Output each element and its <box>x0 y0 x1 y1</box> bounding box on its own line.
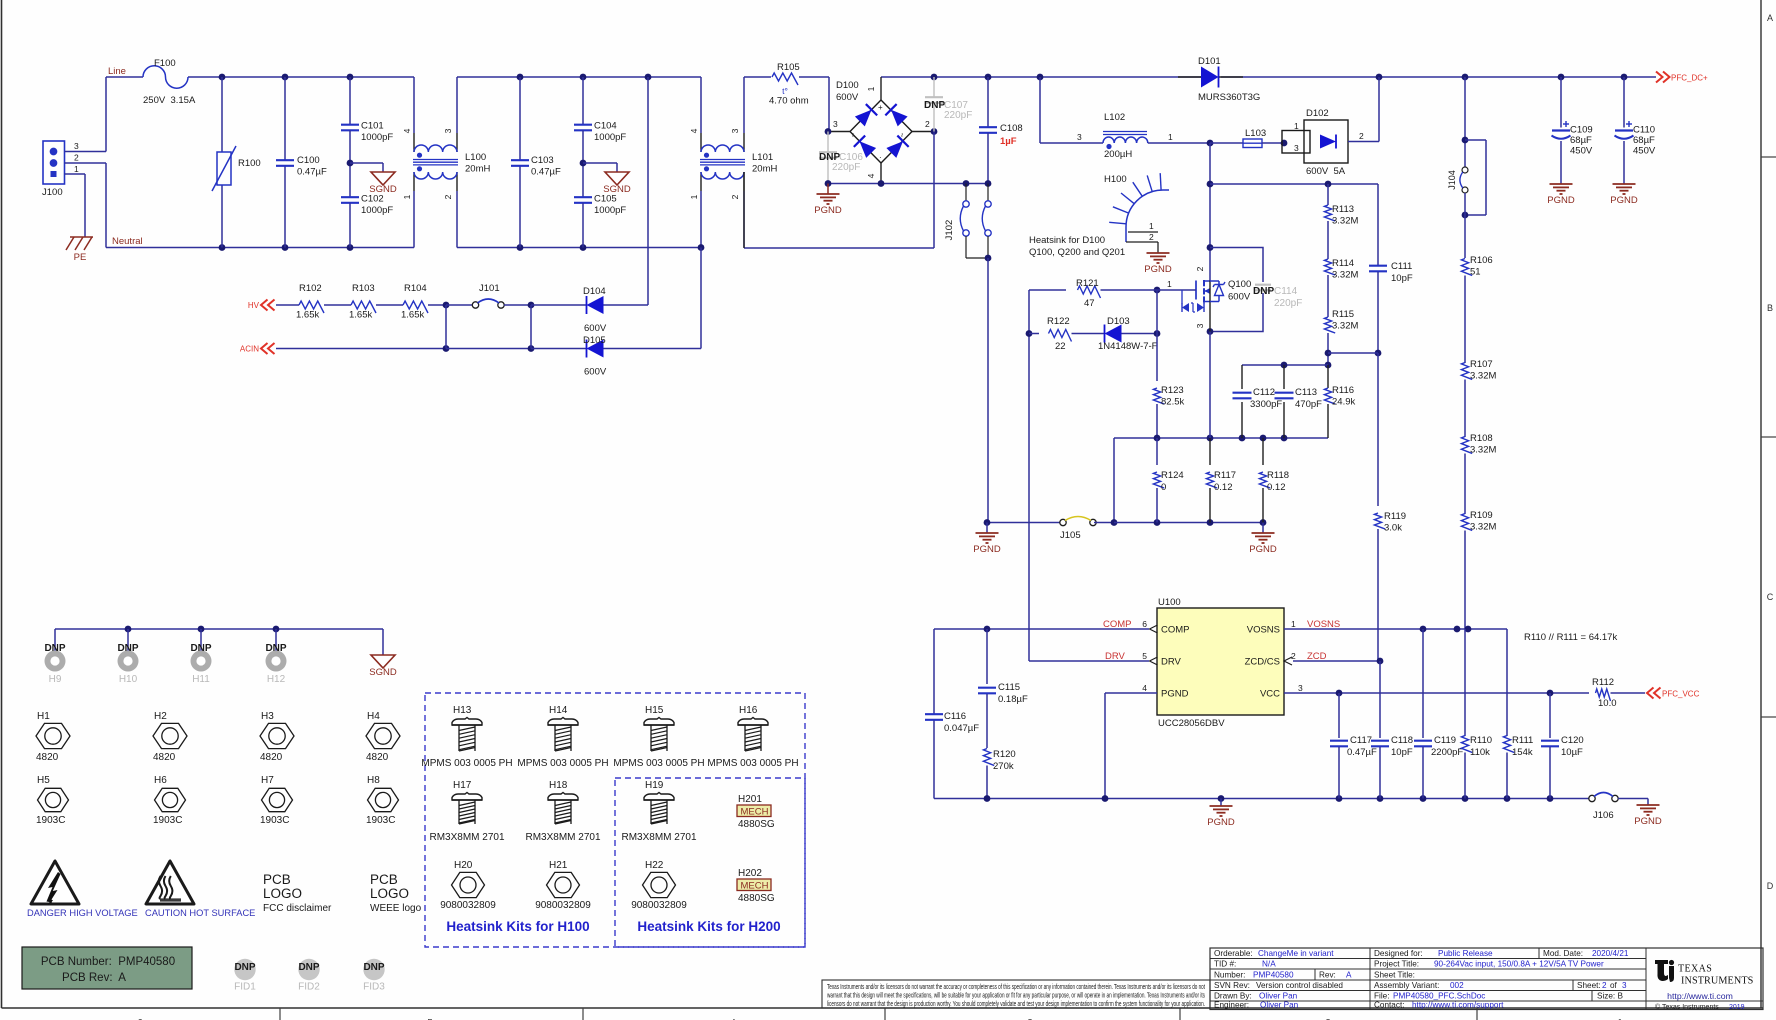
svg-text:A: A <box>1767 13 1773 23</box>
svg-text:4820: 4820 <box>366 752 389 763</box>
svg-text:90-264Vac input, 150/0.8A + 12: 90-264Vac input, 150/0.8A + 12V/5A TV Po… <box>1434 960 1604 969</box>
svg-text:22: 22 <box>1055 341 1066 352</box>
svg-text:Q100, Q200 and Q201: Q100, Q200 and Q201 <box>1029 247 1125 258</box>
svg-text:C120: C120 <box>1561 735 1584 746</box>
svg-text:2: 2 <box>925 119 930 129</box>
svg-text:C112: C112 <box>1253 387 1275 398</box>
svg-text:600V: 600V <box>584 323 607 334</box>
svg-text:R100: R100 <box>238 158 261 169</box>
svg-text:1903C: 1903C <box>36 815 65 826</box>
svg-text:~: ~ <box>898 132 907 137</box>
svg-text:D: D <box>1767 881 1774 891</box>
svg-text:DNP: DNP <box>234 962 255 973</box>
svg-text:0.47µF: 0.47µF <box>1347 747 1377 758</box>
svg-text:MPMS 003 0005 PH: MPMS 003 0005 PH <box>707 758 798 769</box>
svg-text:4.70 ohm: 4.70 ohm <box>769 96 809 107</box>
svg-text:D102: D102 <box>1306 108 1329 119</box>
svg-text:SGND: SGND <box>369 667 397 678</box>
svg-text:A: A <box>1346 971 1352 980</box>
svg-text:1000pF: 1000pF <box>361 205 393 216</box>
svg-text:1.65k: 1.65k <box>349 310 372 321</box>
svg-text:N/A: N/A <box>1262 960 1276 969</box>
svg-text:U100: U100 <box>1158 597 1181 608</box>
svg-text:H100: H100 <box>1104 174 1127 185</box>
svg-text:H10: H10 <box>119 674 138 685</box>
svg-text:0: 0 <box>1161 482 1166 493</box>
svg-text:1: 1 <box>1294 121 1299 131</box>
svg-text:6: 6 <box>1142 619 1147 629</box>
svg-text:C104: C104 <box>594 121 617 132</box>
svg-text:R106: R106 <box>1470 255 1493 266</box>
svg-text:4820: 4820 <box>153 752 176 763</box>
svg-text:C110: C110 <box>1633 125 1655 136</box>
svg-text:1: 1 <box>1168 132 1173 142</box>
svg-text:1903C: 1903C <box>366 815 395 826</box>
svg-text:1: 1 <box>1149 221 1154 231</box>
svg-text:C116: C116 <box>944 711 966 722</box>
svg-text:Q100: Q100 <box>1228 279 1251 290</box>
svg-text:600V: 600V <box>584 367 607 378</box>
svg-text:3.32M: 3.32M <box>1332 216 1358 227</box>
svg-text:t°: t° <box>782 86 788 96</box>
svg-text:PCB Number: PMP40580: PCB Number: PMP40580 <box>41 956 175 968</box>
svg-text:1: 1 <box>689 194 699 199</box>
svg-text:R105: R105 <box>777 62 800 73</box>
svg-text:RM3X8MM 2701: RM3X8MM 2701 <box>621 832 696 843</box>
svg-text:R103: R103 <box>352 283 375 294</box>
svg-text:1N4148W-7-F: 1N4148W-7-F <box>1098 341 1158 352</box>
svg-text:4820: 4820 <box>260 752 283 763</box>
svg-text:1903C: 1903C <box>260 815 289 826</box>
svg-text:PCB: PCB <box>263 872 291 887</box>
svg-text:H15: H15 <box>645 705 664 716</box>
svg-text:DNP: DNP <box>924 100 945 111</box>
svg-text:Contact:: Contact: <box>1374 1001 1405 1010</box>
svg-text:82.5k: 82.5k <box>1161 397 1184 408</box>
svg-text:C118: C118 <box>1391 735 1413 746</box>
svg-text:© Texas Instruments: © Texas Instruments <box>1655 1003 1719 1011</box>
svg-text:20mH: 20mH <box>752 164 777 175</box>
svg-text:D100: D100 <box>836 80 859 91</box>
svg-text:110k: 110k <box>1470 747 1490 758</box>
svg-text:C100: C100 <box>297 155 320 166</box>
svg-text:H1: H1 <box>37 711 50 722</box>
svg-text:Mod. Date:: Mod. Date: <box>1543 949 1583 958</box>
svg-text:PFC_VCC: PFC_VCC <box>1662 690 1700 699</box>
svg-text:2200pF: 2200pF <box>1431 747 1463 758</box>
svg-text:DANGER HIGH VOLTAGE: DANGER HIGH VOLTAGE <box>27 908 138 918</box>
svg-text:2020/4/21: 2020/4/21 <box>1592 949 1629 958</box>
svg-text:C108: C108 <box>1000 123 1023 134</box>
svg-text:1903C: 1903C <box>153 815 182 826</box>
svg-text:1µF: 1µF <box>1000 136 1017 147</box>
svg-text:H16: H16 <box>739 705 758 716</box>
svg-text:Rev:: Rev: <box>1319 971 1336 980</box>
svg-text:FID3: FID3 <box>363 982 385 993</box>
svg-text:2: 2 <box>1291 651 1296 661</box>
svg-text:2: 2 <box>74 153 79 163</box>
svg-text:Number:: Number: <box>1214 971 1245 980</box>
svg-text:C101: C101 <box>361 121 384 132</box>
svg-text:3: 3 <box>1298 683 1303 693</box>
svg-text:C113: C113 <box>1295 387 1317 398</box>
svg-text:450V: 450V <box>1633 146 1656 157</box>
svg-text:LOGO: LOGO <box>263 886 302 901</box>
svg-text:H201: H201 <box>738 794 762 805</box>
svg-text:220pF: 220pF <box>832 162 860 173</box>
svg-text:ZCD/CS: ZCD/CS <box>1245 657 1280 668</box>
svg-text:R109: R109 <box>1470 510 1493 521</box>
svg-text:2: 2 <box>1149 232 1154 242</box>
svg-text:MECH: MECH <box>741 807 769 818</box>
svg-text:C: C <box>1767 592 1774 602</box>
svg-text:3: 3 <box>833 119 838 129</box>
svg-text:L100: L100 <box>465 152 486 163</box>
svg-text:C114: C114 <box>1274 286 1298 297</box>
svg-text:600V: 600V <box>1228 292 1251 303</box>
svg-text:R104: R104 <box>404 283 427 294</box>
svg-text:600V 5A: 600V 5A <box>1306 166 1346 177</box>
svg-text:3300pF: 3300pF <box>1250 399 1282 410</box>
svg-text:H13: H13 <box>453 705 472 716</box>
svg-text:H3: H3 <box>261 711 274 722</box>
svg-text:J102: J102 <box>944 220 955 241</box>
svg-text:C111: C111 <box>1391 261 1412 272</box>
svg-text:R124: R124 <box>1161 470 1184 481</box>
svg-text:PGND: PGND <box>1161 689 1189 700</box>
svg-text:1: 1 <box>866 86 876 91</box>
svg-text:H4: H4 <box>367 711 380 722</box>
svg-text:File:: File: <box>1374 992 1389 1001</box>
svg-text:RM3X8MM 2701: RM3X8MM 2701 <box>525 832 600 843</box>
svg-text:J101: J101 <box>479 283 500 294</box>
svg-text:3: 3 <box>443 128 453 133</box>
svg-text:B: B <box>1767 303 1773 313</box>
svg-text:D101: D101 <box>1198 56 1221 67</box>
svg-text:4: 4 <box>866 173 876 178</box>
svg-text:H12: H12 <box>267 674 286 685</box>
svg-text:HV: HV <box>248 301 260 310</box>
svg-text:3: 3 <box>1622 981 1627 990</box>
svg-text:1: 1 <box>74 164 79 174</box>
svg-text:J100: J100 <box>42 187 63 198</box>
svg-text:ChangeMe in variant: ChangeMe in variant <box>1258 949 1334 958</box>
svg-text:DNP: DNP <box>265 643 286 654</box>
svg-text:R114: R114 <box>1332 258 1354 269</box>
svg-text:PE: PE <box>74 252 87 263</box>
svg-text:1000pF: 1000pF <box>594 205 626 216</box>
svg-text:DNP: DNP <box>44 643 65 654</box>
svg-text:R102: R102 <box>299 283 322 294</box>
svg-text:2019: 2019 <box>1729 1004 1745 1011</box>
svg-text:3.32M: 3.32M <box>1470 522 1496 533</box>
svg-text:~: ~ <box>849 132 858 137</box>
svg-text:Size: B: Size: B <box>1597 992 1623 1001</box>
svg-text:ACIN: ACIN <box>240 345 259 354</box>
svg-text:LOGO: LOGO <box>370 886 409 901</box>
svg-text:R115: R115 <box>1332 309 1354 320</box>
svg-text:3.32M: 3.32M <box>1470 445 1496 456</box>
svg-text:Oliver Pan: Oliver Pan <box>1260 1001 1299 1010</box>
svg-text:0.47µF: 0.47µF <box>297 167 327 178</box>
svg-text:L101: L101 <box>752 152 773 163</box>
svg-text:VCC: VCC <box>1260 689 1280 700</box>
svg-text:C119: C119 <box>1434 735 1456 746</box>
svg-text:PGND: PGND <box>973 544 1001 555</box>
svg-text:R120: R120 <box>993 749 1016 760</box>
svg-text:3.0k: 3.0k <box>1384 523 1402 534</box>
svg-text:10pF: 10pF <box>1391 273 1413 284</box>
svg-text:3: 3 <box>1077 132 1082 142</box>
svg-text:10.0: 10.0 <box>1598 698 1617 709</box>
svg-text:L103: L103 <box>1245 128 1266 139</box>
svg-text:SGND: SGND <box>603 184 631 195</box>
svg-text:R119: R119 <box>1384 511 1406 522</box>
svg-text:PMP40580_PFC.SchDoc: PMP40580_PFC.SchDoc <box>1393 992 1485 1001</box>
svg-text:Heatsink Kits for H100: Heatsink Kits for H100 <box>446 919 589 934</box>
svg-text:CAUTION HOT SURFACE: CAUTION HOT SURFACE <box>145 908 255 918</box>
svg-text:4880SG: 4880SG <box>738 819 775 830</box>
svg-text:DNP: DNP <box>1253 286 1274 297</box>
svg-text:3: 3 <box>1294 143 1299 153</box>
svg-text:Orderable:: Orderable: <box>1214 949 1253 958</box>
svg-text:0.047µF: 0.047µF <box>944 723 979 734</box>
svg-text:PCB: PCB <box>370 872 398 887</box>
svg-text:Line: Line <box>108 66 126 77</box>
svg-text:J105: J105 <box>1060 530 1081 541</box>
svg-text:1000pF: 1000pF <box>594 132 626 143</box>
svg-text:FID1: FID1 <box>234 982 256 993</box>
svg-text:H20: H20 <box>454 860 473 871</box>
svg-text:PCB Rev: A: PCB Rev: A <box>62 972 126 984</box>
svg-text:9080032809: 9080032809 <box>440 900 496 911</box>
svg-text:R116: R116 <box>1332 385 1354 396</box>
svg-text:R110 // R111 = 64.17k: R110 // R111 = 64.17k <box>1524 632 1617 643</box>
svg-text:24.9k: 24.9k <box>1332 397 1355 408</box>
svg-text:450V: 450V <box>1570 146 1593 157</box>
svg-text:1000pF: 1000pF <box>361 132 393 143</box>
svg-text:H21: H21 <box>549 860 568 871</box>
svg-text:002: 002 <box>1450 981 1464 990</box>
svg-text:4: 4 <box>689 128 699 133</box>
svg-text:licensors do not warrant that: licensors do not warrant that the design… <box>827 999 1205 1008</box>
svg-text:F100: F100 <box>154 58 176 69</box>
svg-text:4820: 4820 <box>36 752 59 763</box>
svg-text:of: of <box>1610 981 1618 990</box>
svg-text:COMP: COMP <box>1161 625 1190 636</box>
svg-text:C105: C105 <box>594 194 617 205</box>
svg-text:C115: C115 <box>998 682 1020 693</box>
svg-text:DNP: DNP <box>117 643 138 654</box>
svg-text:3.32M: 3.32M <box>1332 321 1358 332</box>
svg-text:Project Title:: Project Title: <box>1374 960 1419 969</box>
svg-text:1: 1 <box>1167 279 1172 289</box>
svg-text:FCC disclaimer: FCC disclaimer <box>263 903 332 914</box>
svg-text:D105: D105 <box>583 335 606 346</box>
svg-text:UCC28056DBV: UCC28056DBV <box>1158 718 1225 729</box>
svg-text:3: 3 <box>1195 323 1205 328</box>
svg-text:PGND: PGND <box>1144 264 1172 275</box>
svg-text:3: 3 <box>730 128 740 133</box>
svg-text:200µH: 200µH <box>1104 149 1132 160</box>
svg-text:MPMS 003 0005 PH: MPMS 003 0005 PH <box>613 758 704 769</box>
svg-text:9080032809: 9080032809 <box>535 900 591 911</box>
svg-text:C109: C109 <box>1570 125 1593 136</box>
svg-text:H5: H5 <box>37 775 50 786</box>
svg-text:+: + <box>878 103 883 112</box>
svg-text:R113: R113 <box>1332 204 1354 215</box>
svg-text:2: 2 <box>1359 131 1364 141</box>
svg-text:D104: D104 <box>583 286 606 297</box>
svg-text:C117: C117 <box>1350 735 1372 746</box>
svg-text:Assembly Variant:: Assembly Variant: <box>1374 981 1439 990</box>
svg-text:Drawn By:: Drawn By: <box>1214 992 1252 1001</box>
svg-text:PGND: PGND <box>814 205 842 216</box>
svg-text:H202: H202 <box>738 868 762 879</box>
svg-text:5: 5 <box>1142 651 1147 661</box>
svg-text:PMP40580: PMP40580 <box>1253 971 1294 980</box>
svg-text:PGND: PGND <box>1634 816 1662 827</box>
svg-text:·: · <box>879 153 882 162</box>
svg-text:FID2: FID2 <box>298 982 320 993</box>
svg-text:RM3X8MM 2701: RM3X8MM 2701 <box>429 832 504 843</box>
svg-text:R122: R122 <box>1047 316 1070 327</box>
svg-text:DRV: DRV <box>1161 657 1182 668</box>
svg-text:WEEE logo: WEEE logo <box>370 903 422 914</box>
svg-text:1.65k: 1.65k <box>296 310 319 321</box>
svg-text:R111: R111 <box>1512 735 1533 746</box>
svg-text:J106: J106 <box>1593 810 1614 821</box>
svg-text:MPMS 003 0005 PH: MPMS 003 0005 PH <box>517 758 608 769</box>
svg-text:0.12: 0.12 <box>1214 482 1233 493</box>
svg-text:PGND: PGND <box>1547 195 1575 206</box>
svg-text:R112: R112 <box>1592 677 1614 688</box>
svg-text:1: 1 <box>402 194 412 199</box>
svg-text:600V: 600V <box>836 92 859 103</box>
svg-text:Sheet:: Sheet: <box>1577 981 1601 990</box>
svg-text:Neutral: Neutral <box>112 236 143 247</box>
svg-text:L102: L102 <box>1104 112 1125 123</box>
svg-text:47: 47 <box>1084 298 1095 309</box>
svg-text:http://www.ti.com: http://www.ti.com <box>1667 991 1733 1001</box>
svg-text:H11: H11 <box>192 674 210 685</box>
svg-text:4: 4 <box>1142 683 1147 693</box>
svg-text:0.12: 0.12 <box>1267 482 1286 493</box>
svg-text:R110: R110 <box>1470 735 1492 746</box>
svg-text:MECH: MECH <box>741 881 769 892</box>
svg-text:1.65k: 1.65k <box>401 310 424 321</box>
svg-text:220pF: 220pF <box>944 110 972 121</box>
svg-text:DNP: DNP <box>298 962 319 973</box>
svg-text:Engineer:: Engineer: <box>1214 1001 1249 1010</box>
svg-text:PGND: PGND <box>1249 544 1277 555</box>
svg-text:MURS360T3G: MURS360T3G <box>1198 92 1260 103</box>
svg-text:68µF: 68µF <box>1633 135 1655 146</box>
svg-text:TID #:: TID #: <box>1214 960 1236 969</box>
svg-text:10µF: 10µF <box>1561 747 1583 758</box>
svg-text:Version control disabled: Version control disabled <box>1256 981 1343 990</box>
svg-text:H19: H19 <box>645 780 664 791</box>
svg-text:Oliver Pan: Oliver Pan <box>1259 992 1298 1001</box>
svg-text:DNP: DNP <box>363 962 384 973</box>
svg-text:154k: 154k <box>1512 747 1533 758</box>
svg-text:MPMS 003 0005 PH: MPMS 003 0005 PH <box>421 758 512 769</box>
svg-text:D103: D103 <box>1107 316 1130 327</box>
svg-text:H2: H2 <box>154 711 167 722</box>
svg-text:H7: H7 <box>261 775 274 786</box>
svg-text:Designed for:: Designed for: <box>1374 949 1423 958</box>
svg-text:10pF: 10pF <box>1391 747 1413 758</box>
svg-text:H8: H8 <box>367 775 380 786</box>
svg-text:20mH: 20mH <box>465 164 490 175</box>
svg-text:J104: J104 <box>1447 170 1457 190</box>
svg-text:R121: R121 <box>1076 278 1099 289</box>
svg-text:PGND: PGND <box>1610 195 1638 206</box>
svg-text:Heatsink for D100: Heatsink for D100 <box>1029 235 1105 246</box>
svg-text:51: 51 <box>1470 267 1481 278</box>
svg-text:R118: R118 <box>1267 470 1289 481</box>
svg-text:3.32M: 3.32M <box>1470 371 1496 382</box>
svg-text:VOSNS: VOSNS <box>1247 625 1280 636</box>
svg-text:2: 2 <box>1195 266 1205 271</box>
svg-text:C102: C102 <box>361 194 384 205</box>
svg-text:H6: H6 <box>154 775 167 786</box>
svg-text:H9: H9 <box>49 674 62 685</box>
svg-text:PGND: PGND <box>1207 817 1235 828</box>
svg-text:SGND: SGND <box>369 184 397 195</box>
svg-text:9080032809: 9080032809 <box>631 900 687 911</box>
svg-text:INSTRUMENTS: INSTRUMENTS <box>1681 976 1754 987</box>
svg-text:R117: R117 <box>1214 470 1236 481</box>
svg-text:H18: H18 <box>549 780 568 791</box>
svg-text:1: 1 <box>1291 619 1296 629</box>
svg-text:R108: R108 <box>1470 433 1493 444</box>
svg-text:220pF: 220pF <box>1274 298 1302 309</box>
svg-text:68µF: 68µF <box>1570 135 1592 146</box>
svg-text:3: 3 <box>74 141 79 151</box>
svg-text:2: 2 <box>443 194 453 199</box>
svg-text:R123: R123 <box>1161 385 1184 396</box>
svg-text:DNP: DNP <box>190 643 211 654</box>
svg-text:4880SG: 4880SG <box>738 893 775 904</box>
svg-text:TEXAS: TEXAS <box>1678 964 1712 975</box>
svg-text:2: 2 <box>1602 981 1607 990</box>
svg-text:C103: C103 <box>531 155 554 166</box>
svg-text:2: 2 <box>730 194 740 199</box>
svg-text:4: 4 <box>402 128 412 133</box>
svg-text:Sheet Title:: Sheet Title: <box>1374 971 1415 980</box>
svg-text:H22: H22 <box>645 860 664 871</box>
svg-text:470pF: 470pF <box>1295 399 1322 410</box>
svg-text:R107: R107 <box>1470 359 1493 370</box>
svg-text:Public Release: Public Release <box>1438 949 1493 958</box>
svg-text:0.18µF: 0.18µF <box>998 694 1028 705</box>
svg-text:PFC_DC+: PFC_DC+ <box>1671 74 1708 83</box>
svg-text:250V 3.15A: 250V 3.15A <box>143 95 196 106</box>
svg-text:3.32M: 3.32M <box>1332 270 1358 281</box>
svg-text:Heatsink Kits for H200: Heatsink Kits for H200 <box>637 919 780 934</box>
svg-text:H17: H17 <box>453 780 472 791</box>
svg-text:0.47µF: 0.47µF <box>531 167 561 178</box>
svg-text:SVN Rev:: SVN Rev: <box>1214 981 1250 990</box>
svg-text:http://www.ti.com/support: http://www.ti.com/support <box>1412 1001 1504 1010</box>
svg-text:270k: 270k <box>993 761 1014 772</box>
svg-text:H14: H14 <box>549 705 568 716</box>
